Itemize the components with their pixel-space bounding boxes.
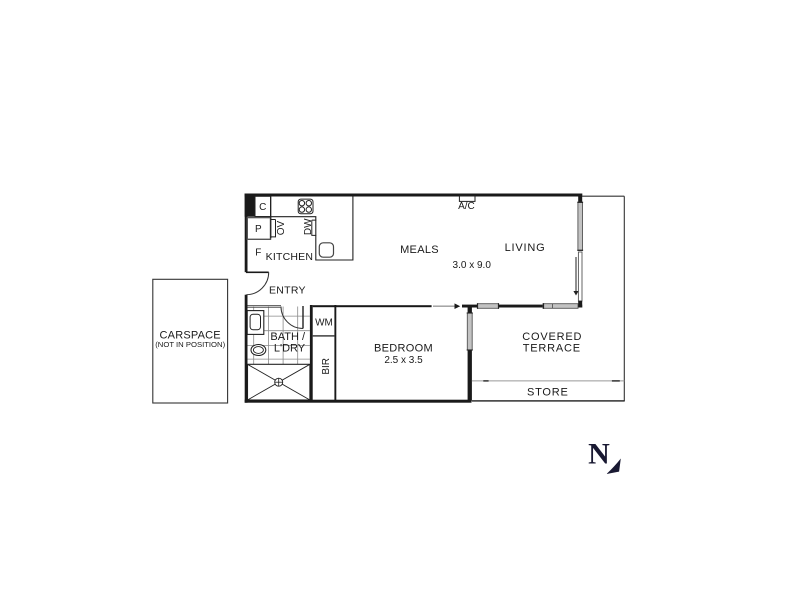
svg-text:N: N [588,437,610,470]
svg-text:BIR: BIR [321,358,332,375]
svg-text:C: C [259,202,266,213]
svg-text:STORE: STORE [527,386,569,398]
svg-text:(NOT IN POSITION): (NOT IN POSITION) [155,340,225,349]
svg-text:DW: DW [303,218,314,235]
svg-text:ENTRY: ENTRY [269,284,306,296]
svg-text:3.0 x 9.0: 3.0 x 9.0 [453,260,492,271]
svg-text:MEALS: MEALS [400,244,439,256]
svg-text:LIVING: LIVING [505,242,546,254]
svg-text:WM: WM [315,318,333,329]
svg-text:L'DRY: L'DRY [274,342,306,354]
svg-text:2.5 x 3.5: 2.5 x 3.5 [384,355,423,366]
svg-text:BEDROOM: BEDROOM [374,343,433,355]
svg-text:TERRACE: TERRACE [523,342,581,354]
svg-text:BATH /: BATH / [270,331,306,343]
svg-text:OV: OV [276,220,287,235]
svg-text:KITCHEN: KITCHEN [266,251,314,263]
svg-text:P: P [255,224,262,235]
svg-text:A/C: A/C [458,201,475,212]
svg-text:F: F [255,248,261,259]
